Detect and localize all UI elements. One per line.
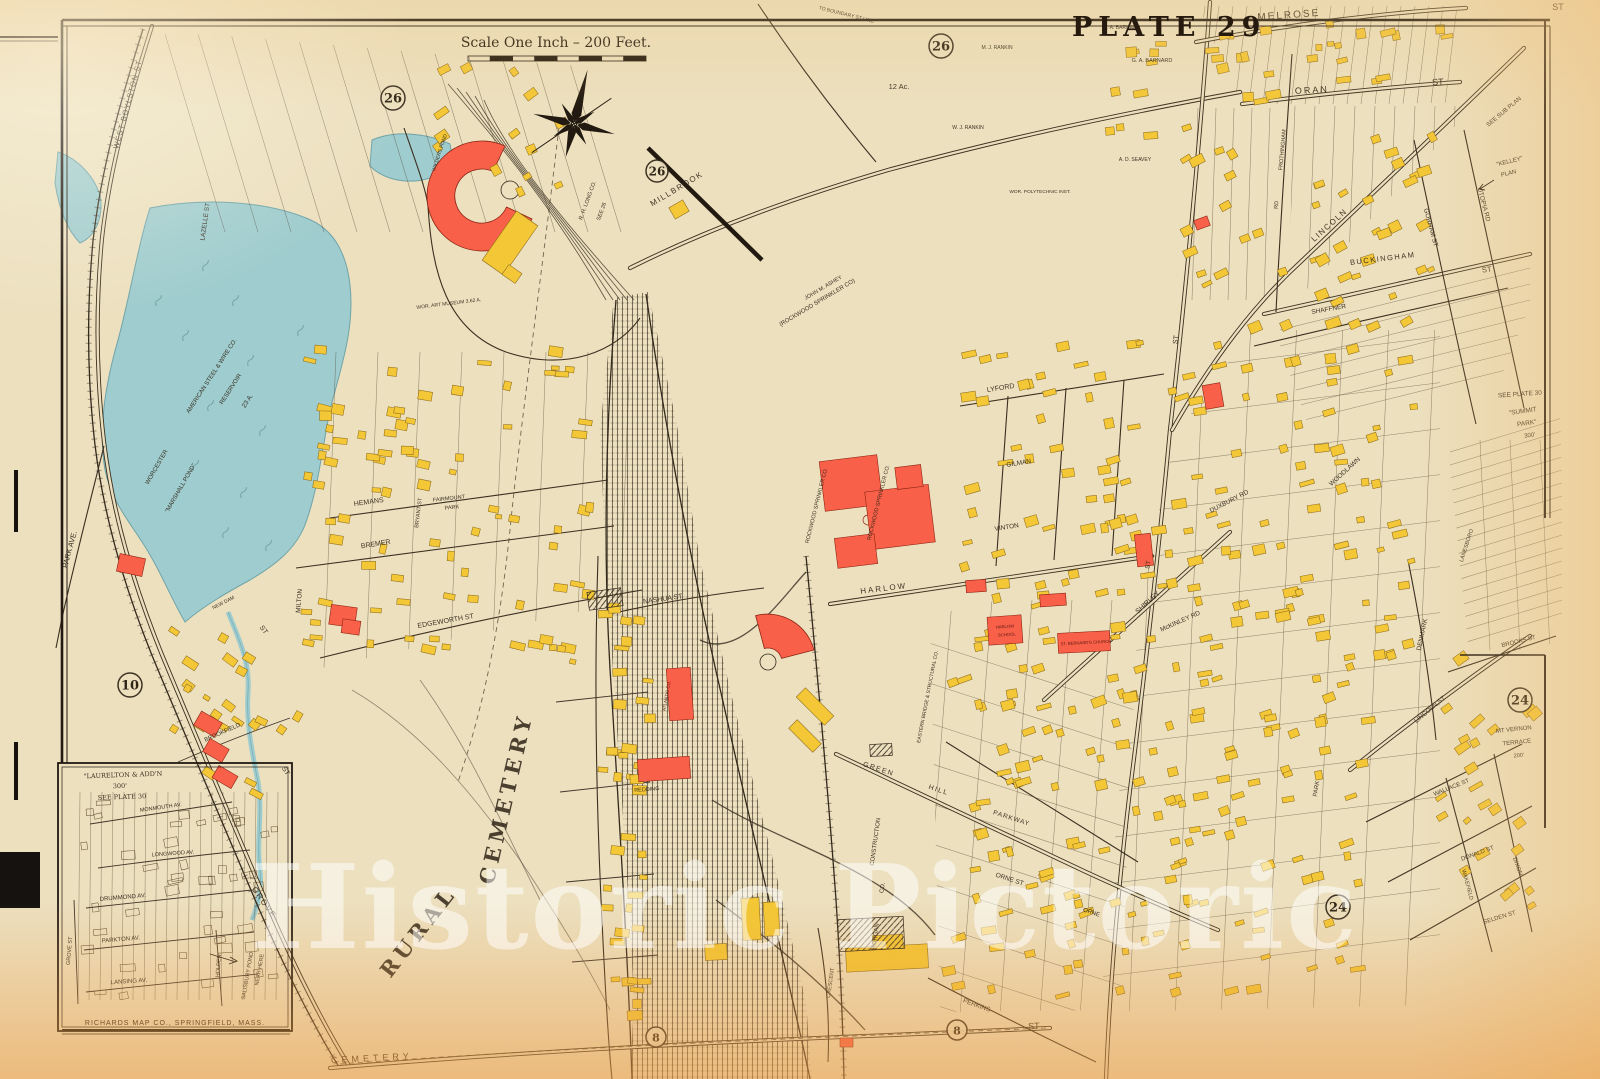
building	[455, 454, 463, 462]
building	[632, 925, 644, 932]
building	[1196, 270, 1206, 278]
building	[1322, 408, 1335, 417]
building	[1026, 882, 1039, 889]
map-label: ST	[1552, 2, 1564, 12]
building	[367, 640, 374, 648]
building	[1373, 425, 1381, 431]
map-label: ST	[258, 624, 269, 636]
building	[1441, 33, 1454, 39]
building	[1198, 670, 1213, 677]
building	[1276, 392, 1288, 401]
map-label: DIXON	[1511, 857, 1523, 877]
plate-title: PLATE 29	[1072, 12, 1266, 43]
building	[999, 909, 1013, 917]
building	[310, 635, 323, 641]
building	[1260, 859, 1275, 871]
building	[1316, 630, 1331, 641]
map-label: R. H. LONG CO.	[578, 180, 598, 221]
building	[158, 964, 165, 972]
building	[488, 505, 499, 513]
building	[449, 469, 457, 475]
building	[1330, 444, 1345, 457]
building-hatched	[870, 743, 893, 756]
building	[1246, 984, 1261, 994]
compass-rose	[524, 60, 628, 172]
building	[1111, 634, 1120, 640]
map-label: WALLACE ST	[1433, 778, 1471, 798]
building	[1307, 54, 1318, 62]
map-label: 300'	[1524, 432, 1536, 439]
building	[1165, 875, 1177, 884]
map-label: "SUMMIT	[1508, 406, 1537, 417]
map-label: SEE SUB PLAN	[1486, 96, 1523, 128]
building	[1295, 461, 1306, 470]
building	[333, 437, 348, 444]
building	[1172, 662, 1180, 672]
building	[218, 633, 229, 644]
building	[94, 813, 103, 820]
building	[372, 488, 381, 493]
building	[1141, 936, 1149, 945]
building	[170, 821, 182, 827]
building	[1091, 695, 1107, 709]
building	[1255, 611, 1269, 619]
map-label: CONSTRUCTION	[870, 818, 883, 867]
building	[478, 360, 492, 366]
building	[391, 574, 404, 582]
building	[1185, 838, 1194, 847]
building	[1239, 234, 1250, 244]
building	[1011, 444, 1022, 451]
building	[318, 598, 333, 607]
map-label: PARK"	[1517, 419, 1538, 429]
scale-bar-segment	[557, 56, 579, 61]
building	[1094, 372, 1106, 382]
building	[1024, 515, 1039, 528]
building	[437, 64, 451, 76]
building	[1055, 992, 1070, 1000]
building	[1171, 498, 1187, 509]
building	[1326, 378, 1337, 386]
map-label: LINCOLN	[1310, 207, 1350, 244]
map-label: SHAFFNER	[1311, 303, 1347, 316]
building	[468, 595, 479, 603]
building	[545, 370, 556, 375]
building	[1095, 588, 1108, 597]
building	[429, 539, 440, 548]
building	[1218, 805, 1230, 816]
building	[1128, 911, 1136, 917]
holden-arrow	[210, 954, 237, 964]
building	[1235, 920, 1245, 927]
map-label: SEE PLATE 30	[98, 792, 147, 802]
building	[962, 539, 972, 545]
building	[961, 391, 977, 402]
building	[503, 424, 512, 429]
building	[1279, 444, 1289, 454]
building	[1254, 908, 1269, 917]
map-label: CEMETERY	[474, 710, 538, 887]
building	[1136, 340, 1144, 346]
building	[125, 908, 139, 916]
building	[1211, 55, 1223, 63]
building	[578, 419, 592, 426]
building	[179, 953, 186, 959]
building	[199, 876, 213, 884]
building	[548, 346, 563, 358]
building	[996, 352, 1008, 358]
building	[1361, 478, 1369, 486]
building	[1043, 388, 1057, 397]
building	[1351, 273, 1361, 280]
building	[1110, 87, 1120, 97]
building	[1361, 716, 1375, 724]
building	[1189, 826, 1200, 833]
building	[1042, 725, 1053, 735]
building	[1166, 578, 1178, 589]
building	[1193, 791, 1208, 801]
building	[326, 518, 336, 525]
building	[1036, 414, 1046, 424]
building	[615, 928, 630, 938]
map-label: SHIRLEY	[1135, 590, 1162, 615]
building	[1086, 495, 1097, 502]
building	[1231, 791, 1245, 800]
building	[644, 714, 655, 723]
map-label: SEE PLATE 30	[1498, 389, 1543, 399]
building	[1038, 626, 1049, 635]
building-red	[637, 756, 690, 782]
map-label: UTOPIA RD	[1476, 187, 1492, 223]
building	[1193, 407, 1206, 416]
building	[1307, 504, 1321, 513]
building	[1356, 516, 1364, 523]
building	[1307, 965, 1318, 972]
building	[324, 457, 338, 467]
building	[182, 656, 199, 671]
building	[1105, 127, 1114, 136]
svg-text:24: 24	[1329, 901, 1347, 916]
building	[1165, 721, 1174, 731]
building	[569, 659, 576, 665]
building	[1371, 134, 1382, 144]
building	[1147, 636, 1156, 643]
building	[201, 979, 214, 988]
turntable-2	[760, 654, 776, 670]
building	[1337, 680, 1350, 687]
svg-text:8: 8	[652, 1032, 660, 1045]
map-label: HEMANS	[353, 497, 384, 508]
building	[1235, 816, 1246, 826]
building	[1085, 392, 1093, 402]
building	[326, 425, 334, 433]
building	[1103, 494, 1114, 503]
building	[1056, 341, 1070, 352]
building	[557, 645, 566, 652]
building	[1336, 57, 1347, 64]
building	[1150, 49, 1159, 57]
building	[1210, 643, 1223, 650]
building-yellow	[705, 943, 728, 960]
building	[1178, 800, 1186, 807]
building	[320, 411, 332, 421]
building	[549, 542, 558, 550]
building	[1189, 153, 1206, 167]
building	[1469, 781, 1484, 792]
building	[1327, 365, 1340, 374]
building	[643, 678, 654, 683]
building	[1064, 965, 1073, 975]
water-features	[55, 134, 451, 920]
building	[1125, 514, 1138, 525]
building	[179, 810, 190, 819]
scale-bar-segment	[602, 56, 624, 61]
map-label: RURAL	[375, 881, 462, 983]
building	[313, 480, 325, 489]
building	[1366, 432, 1378, 443]
map-label: ST	[1028, 1021, 1040, 1031]
building	[1133, 776, 1146, 787]
building	[370, 608, 381, 613]
building	[1231, 449, 1242, 458]
building	[630, 987, 644, 993]
building	[1335, 459, 1348, 465]
building	[996, 578, 1009, 589]
building	[1217, 521, 1231, 529]
map-label: FAIRMOUNT	[432, 494, 465, 503]
building	[1366, 321, 1380, 333]
building	[81, 842, 88, 850]
building	[1112, 718, 1121, 727]
margin-mark	[14, 742, 18, 800]
svg-text:10: 10	[121, 679, 139, 694]
map-label: FROTHINGHAM	[1278, 129, 1288, 171]
building	[86, 809, 93, 816]
building	[1327, 41, 1334, 46]
map-label: SELDEN ST	[1483, 910, 1517, 926]
building	[1068, 706, 1076, 715]
roundhouse-fan	[756, 614, 814, 658]
building-red	[1194, 216, 1211, 230]
building	[997, 769, 1012, 777]
building	[214, 936, 226, 944]
building	[1158, 583, 1167, 588]
building	[164, 837, 179, 848]
building	[1151, 525, 1166, 535]
building	[1117, 589, 1125, 596]
map-label: 12 Ac.	[889, 82, 910, 91]
building	[1043, 637, 1056, 644]
map-label: ST	[1432, 77, 1445, 88]
building	[1335, 955, 1344, 964]
building	[397, 599, 411, 606]
building	[1056, 728, 1065, 737]
svg-text:26: 26	[932, 40, 950, 55]
building	[551, 366, 559, 371]
building	[972, 893, 981, 904]
building	[292, 711, 303, 723]
building	[1042, 524, 1055, 531]
building	[942, 965, 956, 976]
building	[1035, 580, 1046, 590]
building	[967, 508, 977, 519]
map-label: ST	[1481, 264, 1492, 274]
building	[1199, 899, 1209, 906]
map-label: 300'	[113, 782, 128, 790]
building	[417, 459, 431, 469]
building	[613, 668, 627, 676]
building	[1116, 740, 1130, 750]
map-label: BROOKS ST	[1501, 635, 1537, 649]
map-label: NEAR HERE	[254, 953, 266, 986]
map-label: PLAN	[1500, 169, 1517, 179]
building	[495, 514, 502, 519]
building	[1247, 320, 1262, 334]
building	[1120, 478, 1131, 486]
building	[1389, 292, 1397, 300]
building	[996, 743, 1009, 755]
building	[331, 403, 345, 415]
building	[554, 526, 562, 534]
building	[959, 561, 970, 572]
building	[1323, 918, 1334, 928]
building	[987, 985, 995, 994]
building	[1241, 363, 1253, 373]
building	[1095, 779, 1108, 791]
building	[222, 653, 238, 668]
map-label: DUXBURY RD	[1209, 489, 1251, 515]
map-label: BRYANT ST	[414, 497, 424, 528]
building	[1348, 318, 1361, 329]
building	[1384, 147, 1399, 158]
building	[1040, 904, 1056, 914]
building	[203, 694, 211, 701]
building	[1354, 879, 1363, 887]
building	[1183, 246, 1198, 259]
building	[1215, 487, 1228, 495]
building	[523, 172, 532, 181]
map-label: "LAURELTON & ADD'N	[83, 770, 162, 781]
building	[1127, 424, 1140, 431]
building	[1153, 930, 1165, 937]
building	[633, 616, 645, 625]
building	[1282, 796, 1295, 803]
rail-track	[448, 84, 606, 300]
building	[636, 697, 649, 705]
building	[611, 845, 625, 855]
building	[1376, 74, 1391, 82]
building	[394, 407, 405, 415]
building-red	[1202, 383, 1224, 410]
building	[1006, 689, 1018, 699]
building-red	[341, 619, 361, 635]
building	[989, 943, 1005, 952]
building	[515, 600, 524, 610]
building	[1252, 544, 1266, 556]
building-yellow	[796, 688, 833, 725]
building-red	[1040, 593, 1067, 607]
scale-bar-segment	[624, 56, 646, 61]
building	[628, 892, 643, 898]
building	[1410, 404, 1418, 410]
building-red	[116, 553, 145, 576]
building	[1402, 639, 1415, 650]
building-yellow	[669, 200, 689, 219]
plate-ref-circle: 8	[947, 1020, 967, 1040]
building	[210, 911, 222, 918]
building	[1184, 527, 1194, 534]
building	[461, 568, 469, 577]
margin-tab	[0, 852, 40, 908]
building	[1417, 165, 1432, 178]
building	[1316, 44, 1322, 50]
building	[1371, 479, 1381, 489]
plate-ref-circle: 26	[646, 160, 668, 182]
building	[1188, 584, 1201, 592]
building	[171, 873, 184, 882]
building	[1170, 987, 1181, 997]
building	[508, 128, 520, 139]
building	[442, 644, 451, 650]
building	[1219, 200, 1232, 212]
building	[1224, 986, 1239, 996]
plate-ref-circle: 24	[1326, 895, 1350, 919]
building	[621, 637, 632, 647]
building	[601, 905, 613, 912]
scale-bar-group: Scale One Inch – 200 Feet.	[461, 35, 651, 61]
building	[598, 767, 608, 773]
building	[434, 106, 450, 120]
building	[1344, 549, 1358, 560]
plate-ref-circle: 10	[118, 673, 142, 697]
building	[1015, 760, 1031, 773]
building-yellow	[763, 902, 780, 937]
map-label: LANSING AV.	[111, 978, 148, 987]
building	[1167, 767, 1178, 777]
map-label: ST	[1172, 334, 1180, 345]
building	[1427, 266, 1434, 273]
building	[1315, 716, 1327, 727]
building	[304, 472, 313, 481]
building	[1205, 47, 1219, 53]
building	[1109, 518, 1122, 530]
building	[627, 977, 637, 984]
scale-bar	[468, 56, 646, 61]
building	[1171, 862, 1181, 870]
building	[1221, 546, 1231, 555]
building	[1243, 92, 1254, 101]
building	[1032, 755, 1043, 762]
building	[1200, 679, 1209, 687]
map-label: TO BOUNDARY ST LINE	[818, 5, 875, 25]
building	[1407, 558, 1415, 564]
building	[1068, 569, 1079, 579]
building	[222, 699, 236, 712]
building	[1122, 948, 1129, 955]
building	[1182, 124, 1192, 132]
building	[204, 925, 213, 935]
scale-bar-segment	[490, 56, 512, 61]
margin-mark	[14, 470, 18, 532]
building	[1338, 271, 1353, 283]
building	[245, 941, 258, 952]
building	[1288, 728, 1300, 739]
building	[508, 515, 519, 523]
svg-text:24: 24	[1511, 694, 1529, 709]
building	[1036, 703, 1051, 711]
map-label: A. D. SEAVEY	[1119, 157, 1152, 163]
building	[1144, 132, 1158, 140]
